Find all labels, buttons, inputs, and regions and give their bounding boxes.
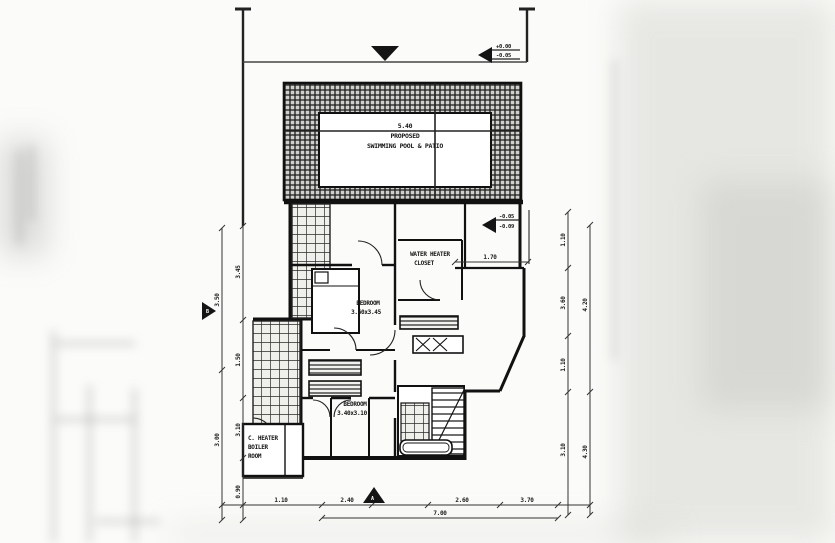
spot-level-mid-right: -0.05 -0.09 — [482, 214, 520, 233]
dim-value: 4.20 — [582, 298, 589, 312]
spot-level-value: -0.05 — [499, 214, 514, 220]
room-label: CLOSET — [414, 260, 435, 267]
room-label: C. HEATER — [248, 435, 278, 442]
dim-value: 2.40 — [340, 497, 354, 504]
pool-patio-area: 5.40 PROPOSED SWIMMING POOL & PATIO — [284, 83, 521, 200]
dim-value: 0.90 — [235, 485, 242, 499]
section-marker-bottom: A — [363, 487, 385, 503]
room-label: BEDROOM — [343, 401, 367, 408]
spot-level-top-right: +0.00 -0.05 — [478, 44, 520, 63]
dim-value: 3.70 — [520, 497, 534, 504]
dim-chain-right: 1.10 3.60 1.10 3.10 4.20 4.30 — [560, 209, 593, 518]
dim-value: 1.70 — [483, 254, 497, 261]
dim-value: 2.60 — [455, 497, 469, 504]
dim-chain-bottom: 1.10 2.40 2.60 3.70 7.00 — [219, 497, 593, 521]
scanned-floor-plan-page: +0.00 -0.05 5.40 PROPOSED SWIMMING POOL … — [0, 0, 835, 543]
dim-value: 3.45 — [235, 265, 242, 279]
floor-plan-drawing: +0.00 -0.05 5.40 PROPOSED SWIMMING POOL … — [0, 0, 835, 543]
room-label: ROOM — [248, 453, 262, 460]
grid-line-right — [519, 9, 535, 62]
room-bedroom-upper: BEDROOM 3.60x3.45 — [312, 269, 382, 333]
dim-value: 3.00 — [214, 433, 221, 447]
kitchen-counter — [413, 336, 463, 353]
dim-value: 3.10 — [560, 443, 567, 457]
dim-value: 1.50 — [235, 353, 242, 367]
pool-label-line2: SWIMMING POOL & PATIO — [367, 142, 443, 150]
dim-value: 3.50 — [214, 293, 221, 307]
dim-value: 3.10 — [235, 423, 242, 437]
section-letter: B — [206, 309, 209, 315]
dim-value: 3.60 — [560, 296, 567, 310]
spot-level-value: -0.05 — [496, 53, 511, 59]
spot-level-value: +0.00 — [496, 44, 511, 50]
dim-value: 1.10 — [560, 233, 567, 247]
room-label: BEDROOM — [356, 300, 380, 307]
spot-level-value: -0.09 — [499, 224, 514, 230]
room-label: 3.40x3.10 — [337, 410, 367, 417]
room-label: 3.60x3.45 — [351, 309, 381, 316]
dim-value: 1.10 — [560, 358, 567, 372]
dim-chain-left: 3.50 3.00 3.45 1.50 3.10 0.90 — [214, 223, 246, 523]
dim-value: 4.30 — [582, 445, 589, 459]
pool-dim-label: 5.40 — [398, 122, 413, 130]
room-water-heater: WATER HEATER CLOSET — [410, 251, 450, 267]
section-marker-top-icon — [371, 46, 399, 61]
bed-symbol — [312, 269, 359, 333]
room-bedroom-lower: BEDROOM 3.40x3.10 — [331, 398, 369, 456]
section-letter: A — [371, 496, 374, 502]
bathtub-symbol — [400, 440, 452, 455]
dim-total: 7.00 — [433, 510, 447, 517]
pool-label-line1: PROPOSED — [391, 132, 420, 140]
dim-value: 1.10 — [274, 497, 288, 504]
room-label: BOILER — [248, 444, 269, 451]
room-boiler: C. HEATER BOILER ROOM — [243, 424, 303, 478]
tiled-court-lower — [253, 321, 300, 424]
grid-line-left — [235, 9, 251, 226]
room-label: WATER HEATER — [410, 251, 450, 258]
